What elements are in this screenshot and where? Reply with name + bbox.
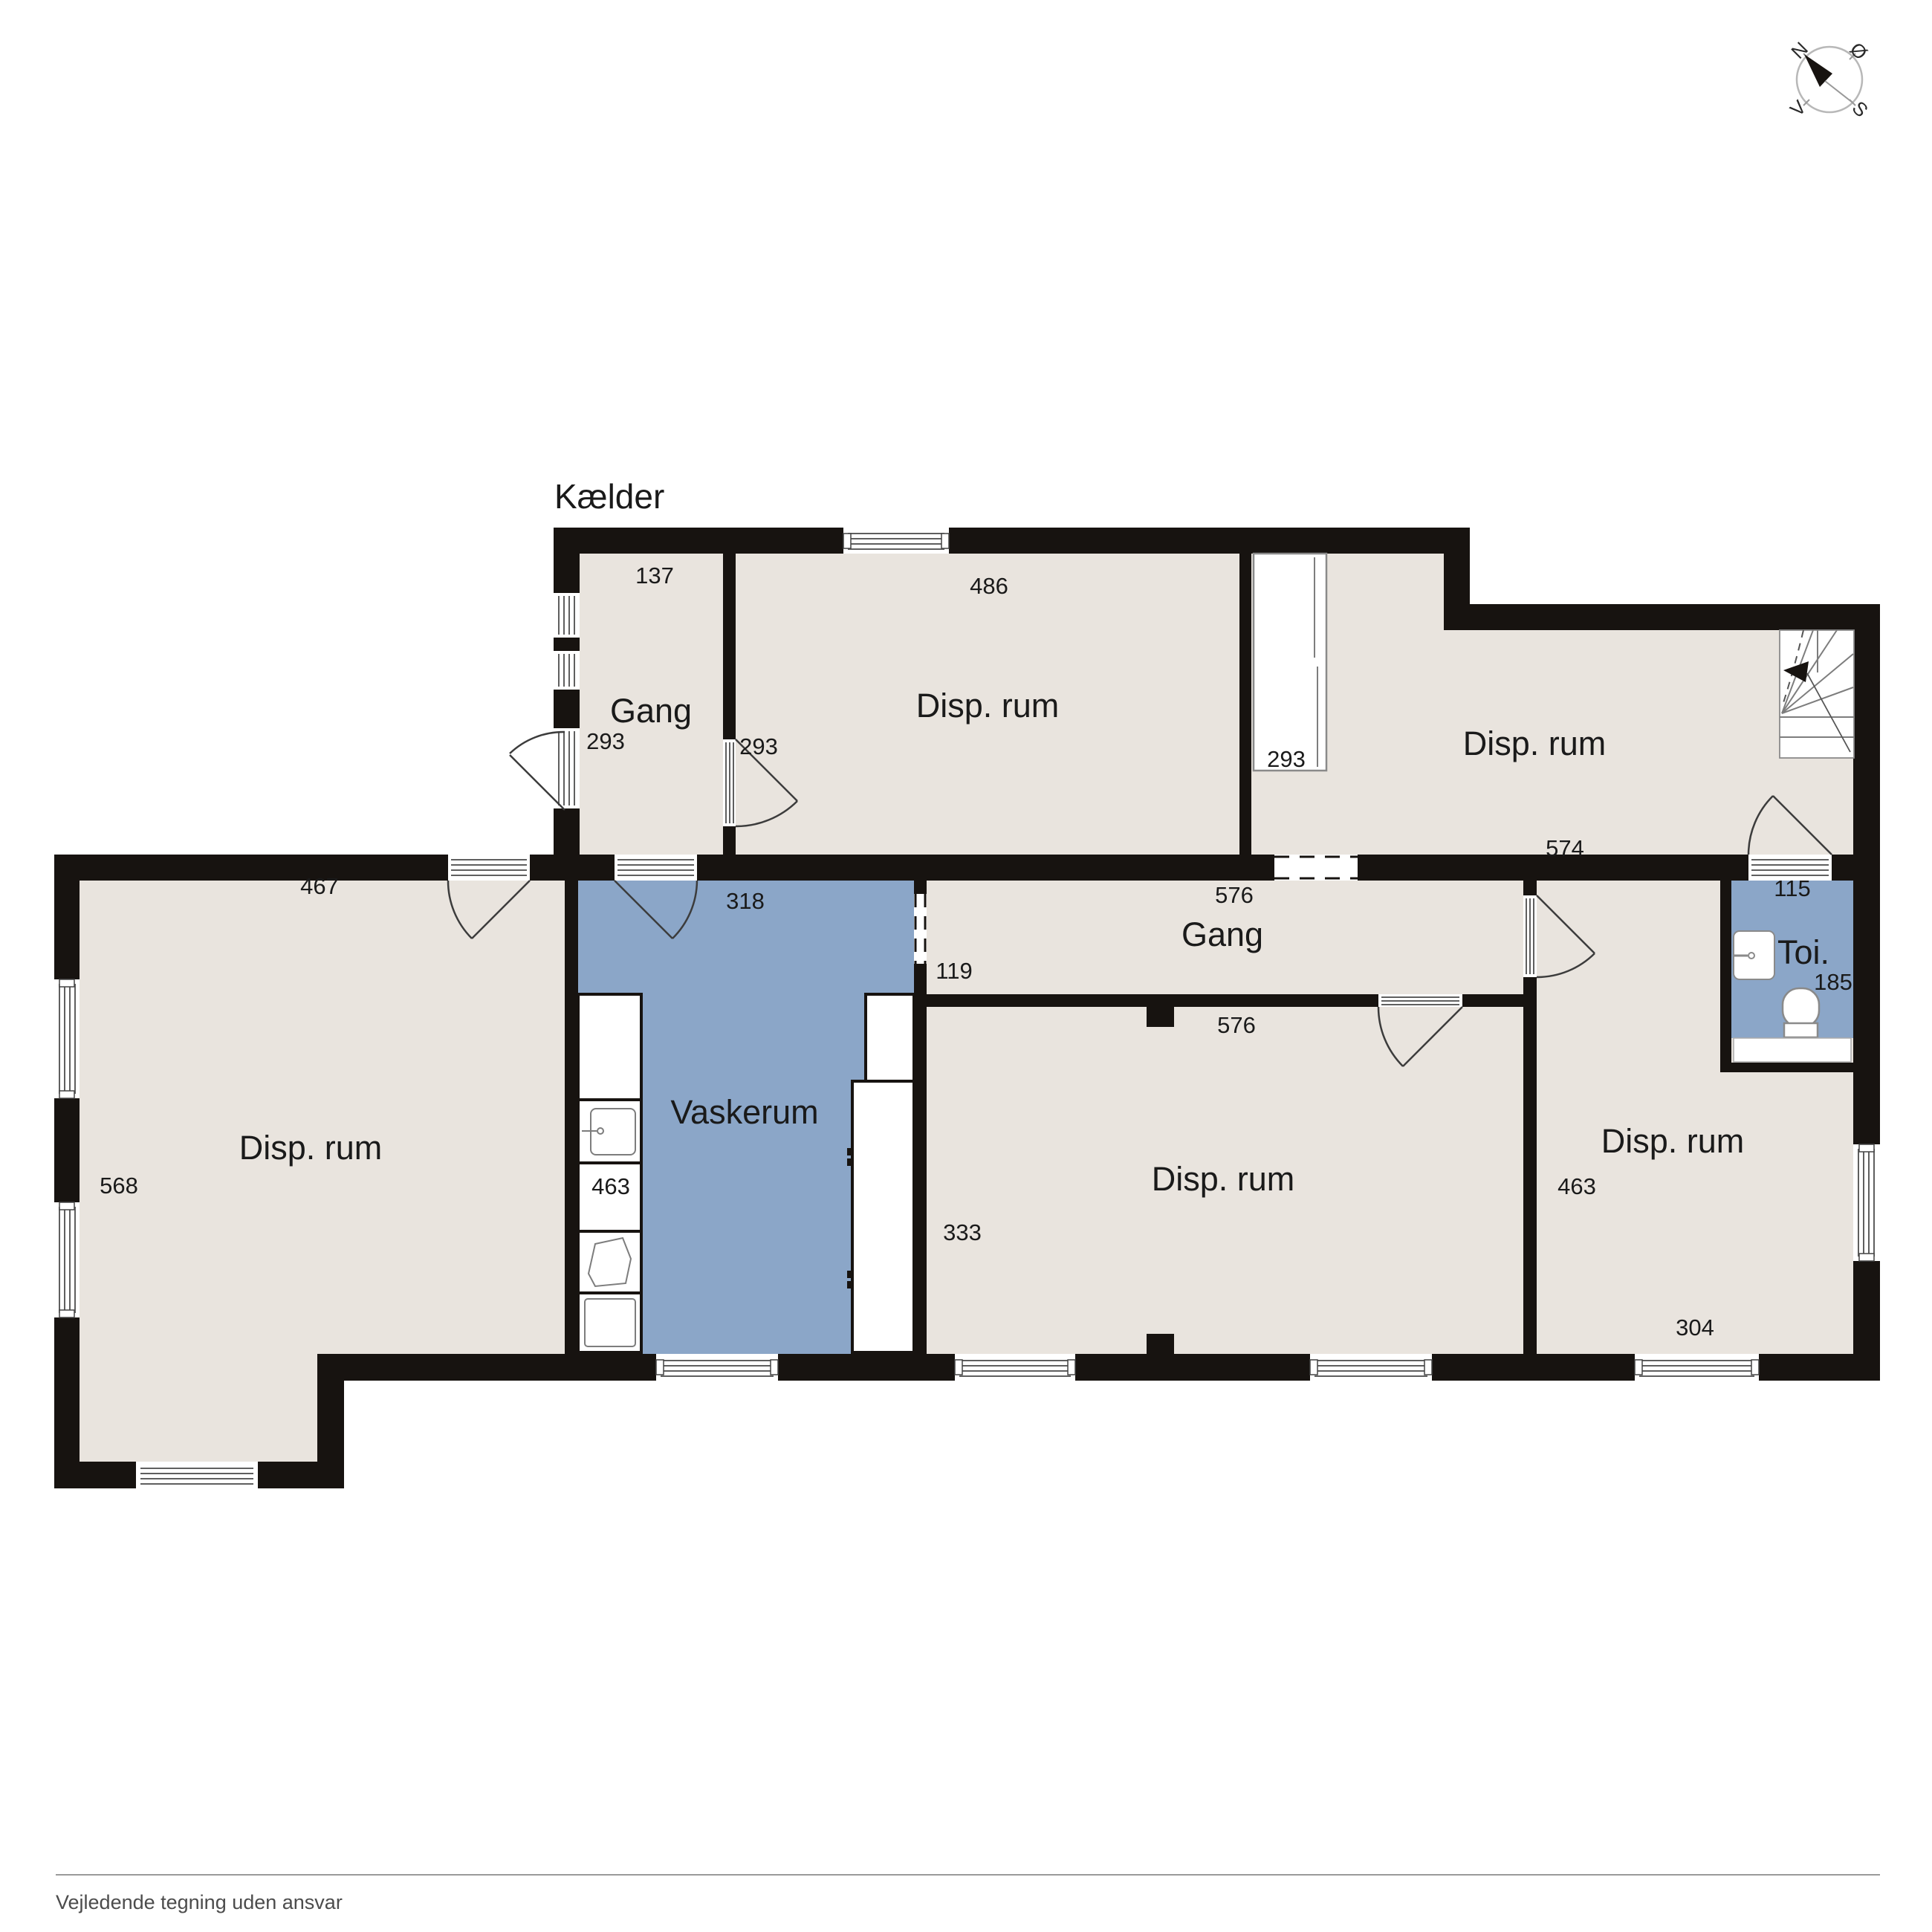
dim-label: 576 <box>1217 1012 1256 1039</box>
window <box>955 1354 1075 1381</box>
room-label-disp-bottom-right: Disp. rum <box>1601 1122 1745 1161</box>
room-label-gang-top: Gang <box>610 692 692 730</box>
stairs-icon <box>1780 630 1854 758</box>
room-label-disp-bottom-center: Disp. rum <box>1152 1160 1295 1199</box>
room-label-disp-left: Disp. rum <box>239 1129 383 1167</box>
door <box>510 728 580 810</box>
pillar <box>1147 1334 1174 1354</box>
disclaimer-text: Vejledende tegning uden ansvar <box>56 1891 343 1914</box>
window <box>843 528 949 554</box>
dim-label: 574 <box>1546 835 1584 862</box>
window <box>656 1354 778 1381</box>
room-label-vaskerum: Vaskerum <box>670 1093 818 1132</box>
window <box>136 1462 258 1488</box>
dim-label: 304 <box>1676 1315 1714 1341</box>
floor-plan-page: Kælder Gang 137 293 Disp. rum 486 293 Di… <box>0 0 1932 1932</box>
dim-label: 463 <box>1557 1173 1596 1200</box>
window <box>1310 1354 1432 1381</box>
dashed-opening <box>1274 855 1358 881</box>
closet <box>1254 554 1326 771</box>
dim-label: 293 <box>739 733 778 760</box>
dashed-opening <box>914 894 927 964</box>
window <box>554 651 580 690</box>
room-label-disp-top-right: Disp. rum <box>1463 724 1607 763</box>
dim-label: 576 <box>1215 882 1254 909</box>
dim-label: 467 <box>300 873 339 900</box>
dim-label: 293 <box>586 728 625 755</box>
room-label-disp-top-center: Disp. rum <box>916 687 1060 725</box>
pillar <box>1147 1007 1174 1027</box>
dim-label: 119 <box>936 958 972 985</box>
room-label-gang-mid: Gang <box>1181 915 1263 954</box>
window <box>54 979 80 1098</box>
window <box>54 1202 80 1317</box>
dim-label: 185 <box>1814 969 1852 996</box>
window <box>1853 1144 1880 1261</box>
dim-label: 318 <box>726 888 765 915</box>
window <box>1635 1354 1759 1381</box>
dim-label: 486 <box>970 573 1008 600</box>
dim-label: 568 <box>100 1173 138 1199</box>
dim-label: 115 <box>1774 875 1810 902</box>
dim-label: 293 <box>1267 746 1306 773</box>
window <box>554 593 580 638</box>
shower-bench <box>1734 1038 1851 1062</box>
dim-label: 463 <box>591 1173 630 1200</box>
dim-label: 333 <box>943 1219 982 1246</box>
room-label-toi: Toi. <box>1777 933 1829 972</box>
dim-label: 137 <box>635 563 674 589</box>
page-title: Kælder <box>554 476 664 516</box>
